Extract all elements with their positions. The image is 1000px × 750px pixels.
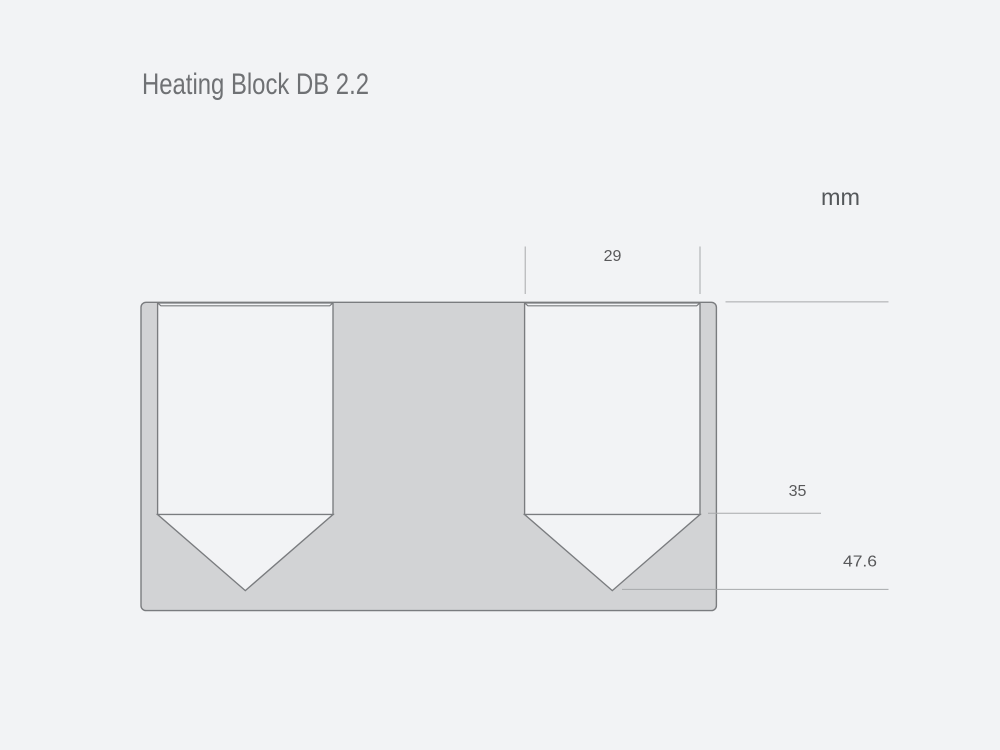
svg-text:47.6: 47.6 (843, 554, 877, 571)
svg-text:29: 29 (604, 248, 622, 265)
svg-text:mm: mm (821, 184, 860, 210)
svg-text:35: 35 (789, 483, 807, 500)
svg-text:Heating Block DB 2.2: Heating Block DB 2.2 (142, 68, 369, 101)
